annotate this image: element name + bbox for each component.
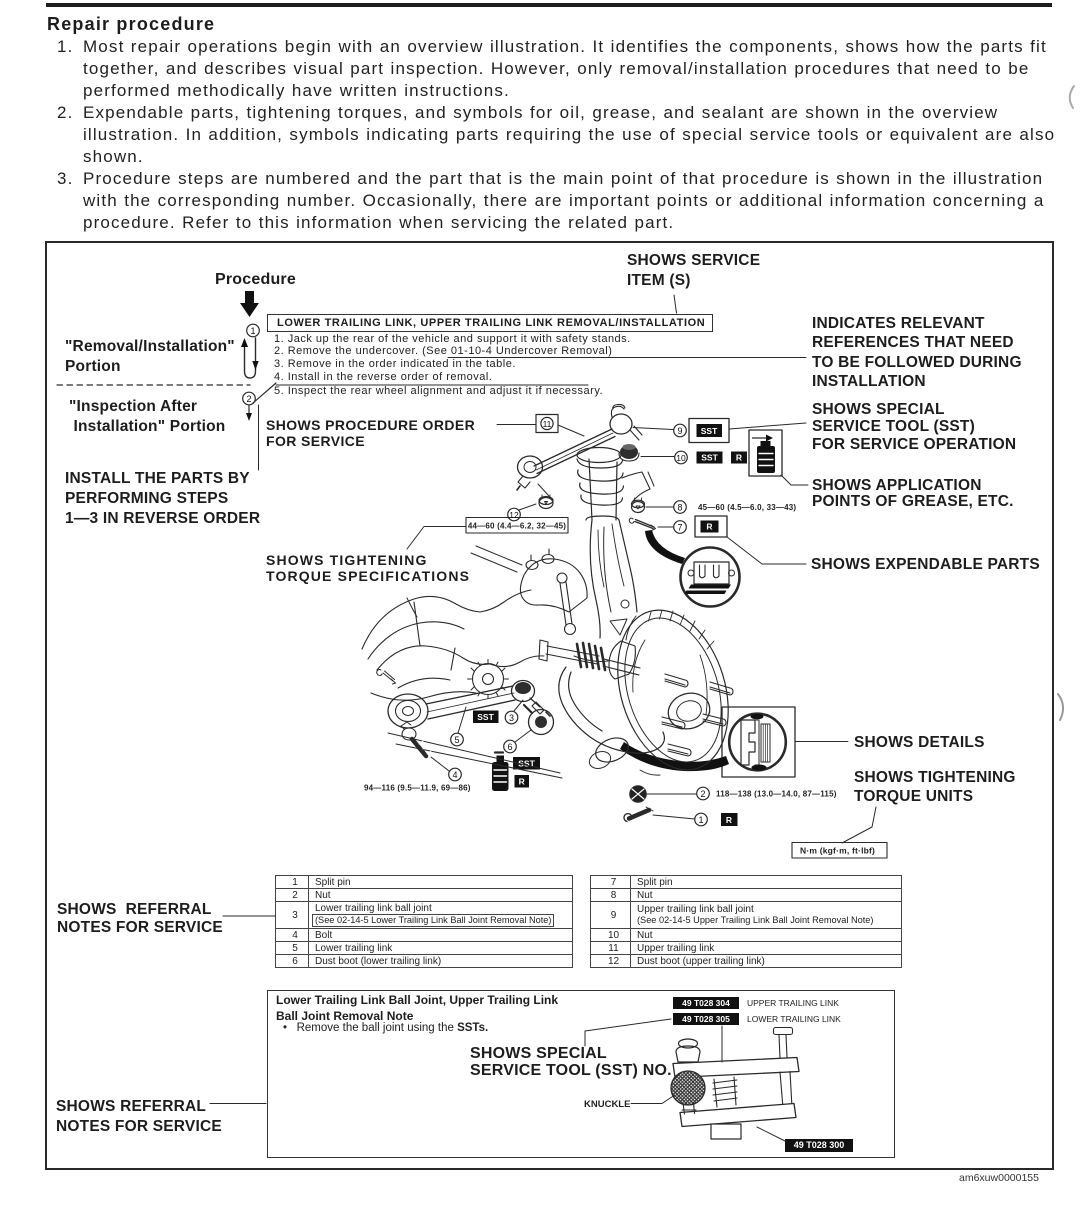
svg-text:3: 3 [509,713,514,723]
svg-text:45—60 (4.5—6.0, 33—43): 45—60 (4.5—6.0, 33—43) [698,503,796,512]
svg-text:11: 11 [543,419,552,429]
svg-text:R: R [736,453,742,463]
svg-text:2: 2 [700,789,705,799]
svg-text:N·m (kgf·m, ft·lbf): N·m (kgf·m, ft·lbf) [800,846,875,856]
svg-text:SST: SST [701,453,718,463]
svg-text:2: 2 [246,394,251,404]
svg-text:5: 5 [454,735,459,745]
svg-text:4: 4 [452,770,457,780]
svg-text:1: 1 [250,326,255,336]
svg-text:6: 6 [507,742,512,752]
svg-text:SST: SST [477,712,494,722]
svg-text:118—138 (13.0—14.0, 87—115): 118—138 (13.0—14.0, 87—115) [716,790,837,799]
svg-text:SST: SST [701,426,718,436]
svg-text:R: R [519,777,525,787]
svg-text:44—60 (4.4—6.2, 32—45): 44—60 (4.4—6.2, 32—45) [468,522,566,531]
svg-text:12: 12 [509,510,519,520]
svg-text:1: 1 [698,815,703,825]
svg-text:10: 10 [676,453,686,463]
svg-text:9: 9 [677,426,682,436]
svg-text:R: R [726,815,732,825]
svg-text:7: 7 [677,523,682,533]
svg-text:94—116 (9.5—11.9, 69—86): 94—116 (9.5—11.9, 69—86) [364,784,471,793]
svg-text:R: R [706,522,712,532]
svg-text:8: 8 [677,503,682,513]
